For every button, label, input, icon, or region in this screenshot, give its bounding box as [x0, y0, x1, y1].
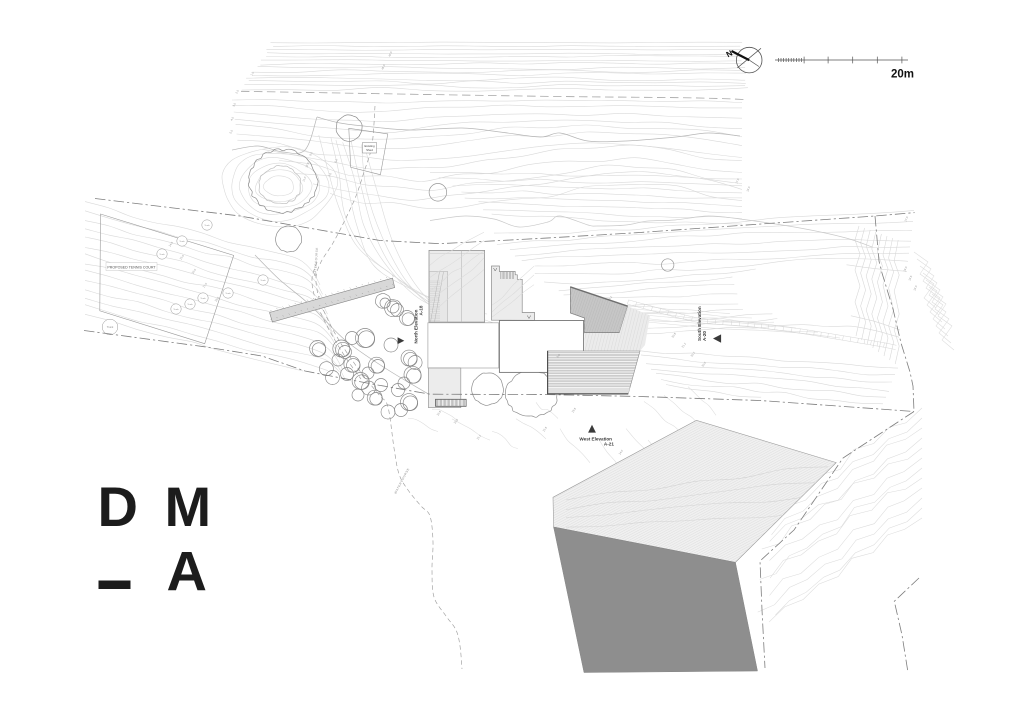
svg-text:A-21: A-21	[604, 441, 614, 446]
svg-text:D: D	[98, 475, 138, 538]
svg-text:Trunk: Trunk	[107, 325, 114, 329]
svg-text:A-20: A-20	[702, 331, 707, 341]
svg-text:PROPOSED TENNIS COURT: PROPOSED TENNIS COURT	[107, 265, 156, 269]
svg-text:Shed: Shed	[366, 148, 373, 152]
svg-text:A: A	[167, 540, 207, 603]
svg-text:20m: 20m	[891, 69, 914, 81]
svg-text:A-18: A-18	[419, 305, 424, 315]
svg-text:M: M	[165, 475, 212, 538]
